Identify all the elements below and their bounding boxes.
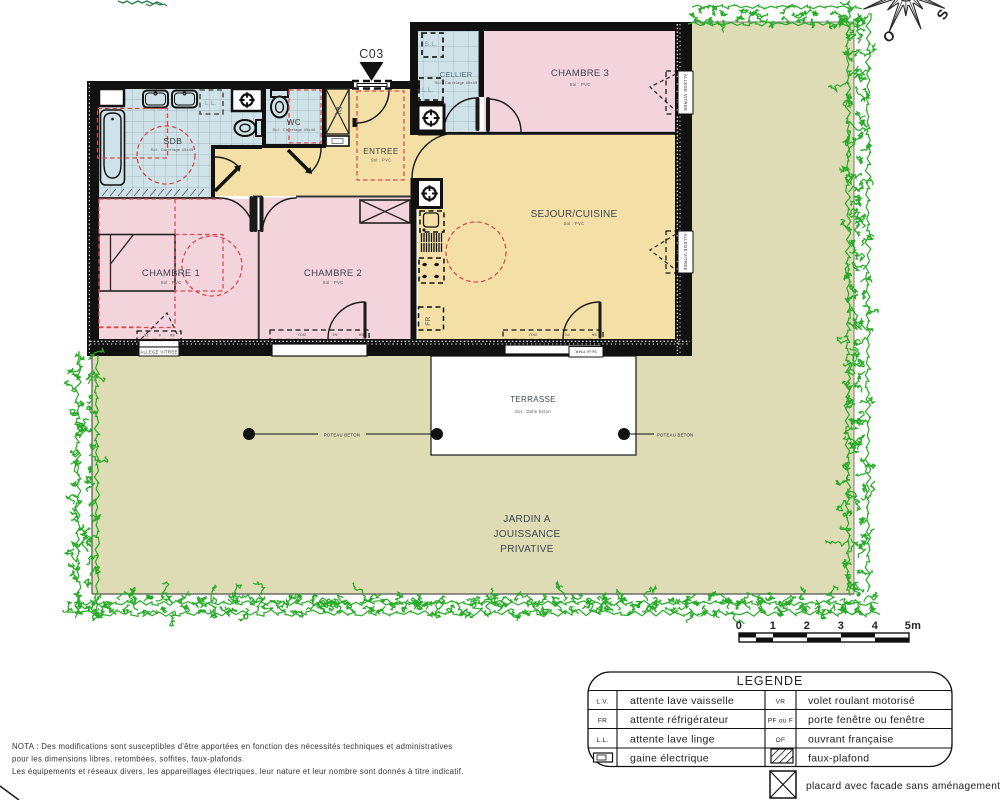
svg-text:2K: 2K <box>143 333 148 337</box>
svg-text:5m: 5m <box>905 620 922 632</box>
svg-text:1: 1 <box>770 620 776 632</box>
svg-text:C03: C03 <box>359 47 383 61</box>
svg-text:volet roulant motorisé: volet roulant motorisé <box>808 695 915 707</box>
svg-text:TERRASSE: TERRASSE <box>510 395 556 404</box>
svg-text:LEGENDE: LEGENDE <box>737 674 804 688</box>
svg-text:8A: 8A <box>591 333 596 337</box>
svg-text:ALLEGE VITREE: ALLEGE VITREE <box>140 350 177 355</box>
svg-text:pour les dimensions libres, re: pour les dimensions libres, retombées, s… <box>12 755 244 764</box>
svg-text:2KU: 2KU <box>529 333 537 337</box>
svg-text:attente lave linge: attente lave linge <box>630 733 715 745</box>
svg-text:Sol : Carrelage 45x45: Sol : Carrelage 45x45 <box>150 148 193 152</box>
svg-text:Sol : Carrelage 45x45: Sol : Carrelage 45x45 <box>272 128 315 132</box>
svg-text:OF: OF <box>776 737 786 744</box>
svg-text:VR: VR <box>776 699 786 706</box>
svg-text:ENTREE: ENTREE <box>363 147 398 156</box>
svg-text:2: 2 <box>804 620 810 632</box>
svg-text:CHAMBRE 2: CHAMBRE 2 <box>304 268 362 279</box>
svg-text:d: d <box>159 333 161 337</box>
svg-text:L.L.: L.L. <box>422 87 434 94</box>
svg-text:Seuil PMR: Seuil PMR <box>575 350 597 355</box>
svg-text:SEJOUR/CUISINE: SEJOUR/CUISINE <box>531 209 618 220</box>
svg-text:Sol : PVC: Sol : PVC <box>161 280 182 285</box>
svg-text:Sol : PVC: Sol : PVC <box>323 280 344 285</box>
svg-text:attente lave vaisselle: attente lave vaisselle <box>630 695 734 707</box>
svg-text:L.V.: L.V. <box>596 699 608 706</box>
svg-text:Sol : PVC: Sol : PVC <box>570 82 591 87</box>
svg-text:FR: FR <box>425 316 432 325</box>
svg-text:Sol : PVC: Sol : PVC <box>564 221 585 226</box>
svg-text:L.L.: L.L. <box>205 100 217 107</box>
svg-text:Sol : PVC: Sol : PVC <box>371 158 392 163</box>
svg-text:ALLEGE VITREE: ALLEGE VITREE <box>683 74 688 111</box>
svg-text:gaine électrique: gaine électrique <box>630 752 709 764</box>
svg-text:PRIVATIVE: PRIVATIVE <box>500 544 553 555</box>
svg-text:JOUISSANCE: JOUISSANCE <box>494 529 561 540</box>
svg-text:4: 4 <box>872 620 879 632</box>
svg-text:CELLIER: CELLIER <box>440 70 473 79</box>
svg-text:ALLEGE VITREE: ALLEGE VITREE <box>683 233 688 270</box>
svg-text:SDB: SDB <box>164 136 183 146</box>
svg-text:L.L.: L.L. <box>596 737 608 744</box>
svg-text:CHAMBRE 1: CHAMBRE 1 <box>142 268 200 279</box>
svg-text:WC: WC <box>287 118 301 127</box>
svg-text:FR: FR <box>598 718 607 725</box>
svg-text:NOTA : Des modifications sont: NOTA : Des modifications sont susceptibl… <box>12 742 453 751</box>
svg-text:placard avec facade sans aména: placard avec facade sans aménagement <box>806 781 1000 792</box>
svg-text:8A: 8A <box>169 333 174 337</box>
svg-text:Sol : Carrelage 45x45: Sol : Carrelage 45x45 <box>434 81 477 85</box>
svg-text:Les équipements et réseaux div: Les équipements et réseaux divers, les a… <box>12 767 464 776</box>
svg-text:porte fenêtre ou fenêtre: porte fenêtre ou fenêtre <box>808 714 925 726</box>
svg-text:8A: 8A <box>358 333 363 337</box>
svg-text:Pd: Pd <box>564 333 569 337</box>
svg-text:faux-plafond: faux-plafond <box>808 752 869 764</box>
svg-text:POTEAU BETON: POTEAU BETON <box>324 433 360 438</box>
svg-text:0: 0 <box>736 620 742 632</box>
svg-text:S.L.: S.L. <box>425 41 438 48</box>
svg-text:PL: PL <box>333 106 343 118</box>
svg-text:attente réfrigérateur: attente réfrigérateur <box>630 714 729 726</box>
svg-text:Sol : Dalle béton: Sol : Dalle béton <box>515 409 551 414</box>
svg-text:ouvrant française: ouvrant française <box>808 733 894 745</box>
svg-text:Ad: Ad <box>332 333 337 337</box>
svg-text:JARDIN A: JARDIN A <box>503 514 550 525</box>
svg-text:3: 3 <box>838 620 844 632</box>
svg-text:PF ou F: PF ou F <box>768 718 793 725</box>
svg-text:POTEAU BETON: POTEAU BETON <box>657 433 693 438</box>
svg-text:2KU: 2KU <box>298 333 306 337</box>
svg-text:CHAMBRE 3: CHAMBRE 3 <box>551 68 609 79</box>
